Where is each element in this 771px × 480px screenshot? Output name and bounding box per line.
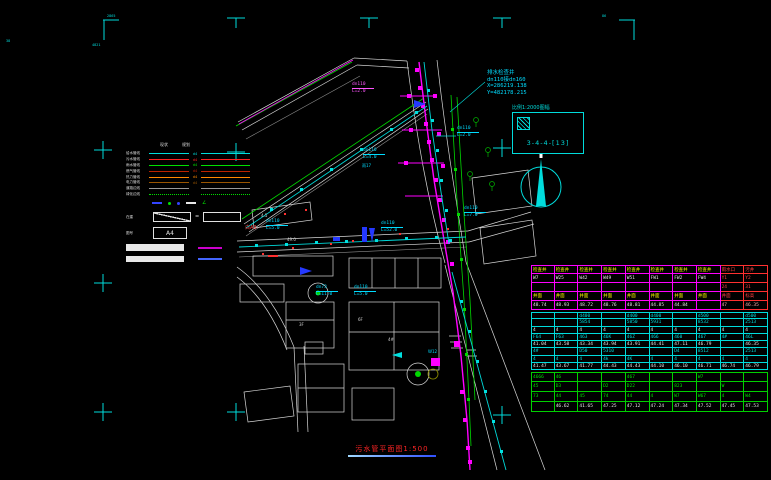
annotation-line: Y=482178.215 (487, 90, 527, 97)
table-cell: FW2 (673, 274, 697, 283)
map-text: 白A3 (245, 226, 257, 230)
table-cell (697, 283, 721, 292)
north-arrow (521, 153, 561, 207)
table-cell: 46 (555, 372, 579, 382)
legend-box-row: 在建= (126, 212, 250, 222)
table-cell: 46.74 (721, 363, 745, 370)
table-cell: 466 (650, 334, 674, 341)
table-cell: 4 (744, 327, 768, 334)
table-cell: 4 (721, 392, 745, 402)
table-cell: FW4 (697, 274, 721, 283)
table-cell: 48.72 (578, 301, 602, 310)
table-cell: 4 (578, 327, 602, 334)
legend-symbol (168, 202, 171, 205)
table-cell: 4k (602, 356, 626, 363)
legend-a4-box: A4 (153, 227, 187, 239)
table-cell (578, 372, 602, 382)
table-cell: FW1 (650, 274, 674, 283)
olive-circle-marker (428, 369, 438, 379)
table-cell (673, 283, 697, 292)
table-cell: 46.35 (744, 341, 768, 348)
table-cell: 雨水口 (721, 265, 745, 274)
table-cell: D4 (673, 348, 697, 355)
table-cell (673, 319, 697, 326)
table-cell: 48.81 (626, 301, 650, 310)
sheet-box-frame: 3-4-4-[13] (512, 112, 584, 154)
table-section: d400d400d400d500d50058545850593185322513… (531, 312, 768, 370)
table-cell: 4 (721, 327, 745, 334)
sheet-index-box: 比例1:2000图幅 3-4-4-[13] (512, 104, 584, 154)
table-cell (531, 283, 555, 292)
table-cell: 检查井 (531, 265, 555, 274)
table-cell: 43.34 (578, 341, 602, 348)
table-cell: 4 (697, 327, 721, 334)
table-cell (721, 372, 745, 382)
table-cell: 井面 (673, 292, 697, 301)
table-cell: 检查井 (626, 265, 650, 274)
table-cell: 47.11 (673, 341, 697, 348)
table-cell: 73 (531, 392, 555, 402)
pipe-label: dn110L=52.0 (381, 221, 403, 233)
table-cell: F64 (531, 334, 555, 341)
table-cell: 5854 (578, 319, 602, 326)
table-cell (602, 319, 626, 326)
elevation-table: 检查井检查井检查井检查井检查井检查井检查井检查井雨水口污井W7W25W42W49… (531, 265, 768, 414)
table-cell (744, 382, 768, 392)
legend-symbol: ∠ (202, 201, 206, 206)
table-cell: 467 (697, 334, 721, 341)
grid-coordinate-label: 86 (602, 14, 606, 18)
table-cell: 47.34 (673, 402, 697, 412)
legend-plain-box (203, 212, 241, 222)
table-cell: 46K (602, 334, 626, 341)
table-cell: 43.67 (555, 363, 579, 370)
table-cell (602, 312, 626, 319)
cyan-wells (255, 89, 503, 453)
table-cell: F63 (555, 334, 579, 341)
table-cell: 井面 (626, 292, 650, 301)
table-cell: 4# (721, 334, 745, 341)
table-cell: 74 (602, 392, 626, 402)
table-cell: W51 (626, 274, 650, 283)
table-cell: W7 (697, 372, 721, 382)
table-cell: W4 (744, 392, 768, 402)
table-cell: 31 (744, 283, 768, 292)
coordinate-annotation: 排水检查井 dn110接dn160 X=286219.138 Y=482178.… (487, 70, 527, 96)
table-cell: 24 (721, 283, 745, 292)
pipe-label: dn110L=4.0 (363, 148, 385, 160)
table-cell: 45 (578, 392, 602, 402)
table-cell: 4 (650, 356, 674, 363)
table-cell: 4666 (531, 372, 555, 382)
table-cell: 41.47 (531, 363, 555, 370)
table-cell: W67 (697, 392, 721, 402)
table-cell: D2 (602, 382, 626, 392)
table-cell: 4 (626, 327, 650, 334)
table-cell (650, 372, 674, 382)
table-cell: 48.93 (555, 301, 579, 310)
table-cell: 井面 (555, 292, 579, 301)
table-cell: 463 (578, 334, 602, 341)
table-cell: 44.43 (626, 363, 650, 370)
table-cell (531, 402, 555, 412)
table-cell: 4 (578, 356, 602, 363)
table-cell: d500 (697, 312, 721, 319)
legend-symbol (177, 202, 180, 205)
table-cell: d400 (626, 312, 650, 319)
table-cell: 4 (673, 356, 697, 363)
table-cell: 46L (744, 334, 768, 341)
table-cell (697, 382, 721, 392)
table-cell: 4 (697, 356, 721, 363)
table-cell: 46.35 (744, 301, 768, 310)
table-cell: 4 (531, 327, 555, 334)
table-cell: 44.41 (650, 341, 674, 348)
table-cell (555, 319, 579, 326)
table-cell: 2513 (744, 319, 768, 326)
map-text: W12 (428, 350, 437, 354)
pipe-label: dn110L=7.0 (464, 206, 486, 218)
table-cell: 47.25 (602, 402, 626, 412)
table-cell: 检查井 (602, 265, 626, 274)
table-cell: 47.52 (697, 402, 721, 412)
table-cell: 823 (673, 382, 697, 392)
table-cell: 井面 (697, 292, 721, 301)
table-cell: 460 (673, 334, 697, 341)
table-cell: 检查井 (673, 265, 697, 274)
table-cell (650, 348, 674, 355)
table-cell: Y1 (721, 274, 745, 283)
map-text: 4# (388, 338, 394, 342)
table-cell: 4 (650, 392, 674, 402)
title-text: 污水管平面图1:500 (348, 444, 436, 454)
table-cell: 检查井 (555, 265, 579, 274)
table-cell: 44.84 (673, 301, 697, 310)
table-cell: 5850 (626, 319, 650, 326)
map-text: 6F (358, 318, 363, 322)
table-cell: 47.24 (650, 402, 674, 412)
table-cell: D3 (555, 382, 579, 392)
table-cell: 8512 (697, 348, 721, 355)
table-cell: Y2 (744, 274, 768, 283)
legend-header: 现状规划 (126, 142, 250, 151)
green-markers (316, 128, 471, 401)
table-cell (578, 382, 602, 392)
table-cell: 45 (531, 382, 555, 392)
table-cell: W7 (673, 392, 697, 402)
pipe-label: dn110L=5.0 (354, 285, 376, 297)
table-cell: 井面 (531, 292, 555, 301)
table-cell: 4# (531, 348, 555, 355)
table-cell: W49 (602, 274, 626, 283)
legend-symbols: ∠ (126, 199, 250, 207)
annotation-line: X=286219.138 (487, 83, 527, 90)
table-cell: d400 (578, 312, 602, 319)
table-cell (555, 283, 579, 292)
table-cell: 5310 (602, 348, 626, 355)
table-cell: 4 (531, 356, 555, 363)
table-cell (721, 341, 745, 348)
table-cell: 48.76 (602, 301, 626, 310)
map-text: 3F (299, 323, 304, 327)
table-cell: 井面 (602, 292, 626, 301)
magenta-pipes (239, 60, 470, 470)
legend-row: 绿化边线 (126, 192, 250, 198)
grid-coordinate-label: 4821 (92, 43, 100, 47)
table-cell (531, 312, 555, 319)
table-cell: 43.91 (626, 341, 650, 348)
table-cell: 8532 (697, 319, 721, 326)
table-cell (697, 301, 721, 310)
hatch-swatch (517, 117, 530, 130)
legend-hatched-box (153, 212, 191, 222)
table-section: 检查井检查井检查井检查井检查井检查井检查井检查井雨水口污井W7W25W42W49… (531, 265, 768, 310)
table-cell (744, 372, 768, 382)
table-cell: 44 (555, 392, 579, 402)
title-underline (348, 455, 436, 457)
table-cell (721, 348, 745, 355)
map-text: 4.5 (261, 214, 267, 218)
table-cell: 46.79 (697, 341, 721, 348)
table-cell: 5931 (650, 319, 674, 326)
table-cell: 48.74 (531, 301, 555, 310)
table-cell: 4 (602, 327, 626, 334)
table-cell: 47.12 (626, 402, 650, 412)
table-cell: 4K (626, 356, 650, 363)
table-cell: 井面 (650, 292, 674, 301)
table-cell: 标高 (744, 292, 768, 301)
table-cell: 44.43 (602, 363, 626, 370)
table-cell: W25 (555, 274, 579, 283)
table-cell (578, 283, 602, 292)
sheet-number: 3-4-4-[13] (513, 139, 583, 147)
table-cell (602, 283, 626, 292)
table-cell: 47.45 (721, 402, 745, 412)
table-cell: 污井 (744, 265, 768, 274)
table-cell: 41.65 (578, 402, 602, 412)
table-cell: 46.62 (555, 402, 579, 412)
table-cell: 41.77 (578, 363, 602, 370)
sheet-box-label: 比例1:2000图幅 (512, 104, 584, 111)
table-cell: 43.94 (602, 341, 626, 348)
table-cell: d500 (744, 312, 768, 319)
pipe-label: dn110L=2.0 (352, 82, 374, 94)
legend-bar-row (126, 244, 250, 251)
pipe-label: dn110L=2.0 (457, 126, 479, 138)
table-cell: W (721, 382, 745, 392)
table-cell: 4 (721, 356, 745, 363)
table-cell: 46.10 (673, 363, 697, 370)
table-cell (626, 283, 650, 292)
grid-coordinate-label: 2865 (107, 14, 115, 18)
table-cell (673, 372, 697, 382)
table-cell: 检查井 (697, 265, 721, 274)
table-cell: 46Z (626, 334, 650, 341)
table-cell (721, 319, 745, 326)
legend-symbol (186, 202, 196, 204)
drawing-title: 污水管平面图1:500 (348, 444, 436, 457)
table-cell: 44 (626, 392, 650, 402)
table-cell: 4 (744, 356, 768, 363)
table-cell: 46.79 (744, 363, 768, 370)
table-cell: 4 (650, 327, 674, 334)
table-cell (531, 319, 555, 326)
table-cell: 井面 (721, 292, 745, 301)
table-cell: 检查井 (650, 265, 674, 274)
table-cell (721, 312, 745, 319)
table-cell: 47.53 (744, 402, 768, 412)
table-cell: 467 (626, 372, 650, 382)
legend-bar-row (126, 256, 250, 262)
table-cell (555, 312, 579, 319)
table-cell: D22 (626, 382, 650, 392)
table-cell: 41.04 (531, 341, 555, 348)
cad-drawing-canvas: 2865 4821 86 38 (0, 0, 771, 480)
table-cell: 43.58 (555, 341, 579, 348)
table-cell: 4 (555, 356, 579, 363)
table-cell (555, 348, 579, 355)
table-cell: 2513 (744, 348, 768, 355)
table-cell: 44.85 (650, 301, 674, 310)
pipe-label: dn110L=5.0 (266, 219, 288, 231)
table-section: 466646467W745D3D2D22823W73444574444W7W67… (531, 372, 768, 412)
table-cell (626, 348, 650, 355)
table-cell: W42 (578, 274, 602, 283)
table-cell: d400 (650, 312, 674, 319)
legend-a4-row: 图号A4 (126, 227, 250, 239)
table-cell (673, 312, 697, 319)
table-cell: D50 (578, 348, 602, 355)
table-cell: 44.10 (650, 363, 674, 370)
table-cell: 46.71 (697, 363, 721, 370)
grid-coordinate-label: 38 (6, 39, 10, 43)
table-cell: 4 (673, 327, 697, 334)
map-text: 49.0 (287, 238, 296, 242)
table-cell (602, 372, 626, 382)
legend-symbol (152, 202, 162, 204)
table-cell: 检查井 (578, 265, 602, 274)
pipe-label: dn73L=11.0 (316, 285, 338, 297)
table-cell: 47 (721, 301, 745, 310)
table-cell (650, 283, 674, 292)
table-cell: W7 (531, 274, 555, 283)
table-cell (650, 382, 674, 392)
table-cell: 4 (555, 327, 579, 334)
map-text: 雨17 (362, 164, 371, 168)
table-cell: 井面 (578, 292, 602, 301)
legend: 现状规划给水管线d4污水管线d4雨水管线d4燃气管线d4热力管线d4电力管线d4… (126, 142, 250, 262)
